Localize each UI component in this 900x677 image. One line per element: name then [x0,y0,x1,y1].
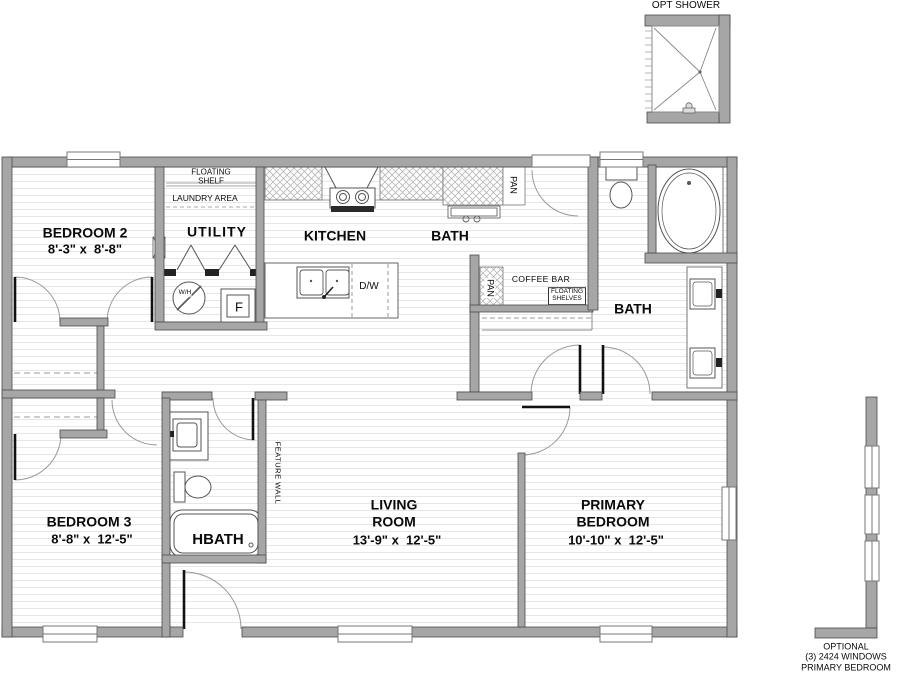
bedroom3-label: BEDROOM 3 [47,514,132,531]
opt-shower-detail [645,15,730,123]
floor-plan: OPT SHOWER BEDROOM 2 8'-3" x 8'-8" UTILI… [0,0,900,677]
opt-shower-label: OPT SHOWER [652,0,720,12]
hbath-vanity [167,412,208,460]
optional-windows-note: OPTIONAL (3) 2424 WINDOWS PRIMARY BEDROO… [801,641,891,672]
primary-bedroom-label: PRIMARY BEDROOM [576,496,649,529]
floating-shelf-label: FLOATING SHELF [191,168,230,187]
primary-bath-vanity [687,267,722,388]
hbath-label: HBATH [192,531,243,549]
coffee-bar-label: COFFEE BAR [512,274,570,284]
floating-shelves-label: FLOATING SHELVES [548,287,586,305]
water-heater [173,282,205,314]
living-room-label: LIVING ROOM [371,496,418,529]
water-heater-label: W/H [179,289,192,297]
pantry-lower-label: PAN [485,278,496,298]
optional-windows-detail [815,397,879,638]
dishwasher-label: D/W [359,281,378,293]
hall-bath-label: BATH [431,228,469,245]
bedroom2-label: BEDROOM 2 [43,225,128,242]
kitchen-label: KITCHEN [304,228,366,245]
floorplan-drawing [0,0,900,677]
range [325,167,378,212]
furnace-label: F [235,299,243,314]
primary-bath-label: BATH [614,301,652,318]
primary-bedroom-dims: 10'-10" x 12'-5" [568,532,664,547]
laundry-area-label: LAUNDRY AREA [172,193,237,203]
bedroom2-dims: 8'-3" x 8'-8" [48,241,122,256]
utility-label: UTILITY [187,224,247,241]
primary-bath-tub [656,167,723,255]
feature-wall-label: FEATURE WALL [273,442,282,505]
living-room-dims: 13'-9" x 12'-5" [353,532,442,547]
pantry-upper-label: PAN [508,176,519,194]
bedroom3-dims: 8'-8" x 12'-5" [51,531,132,546]
